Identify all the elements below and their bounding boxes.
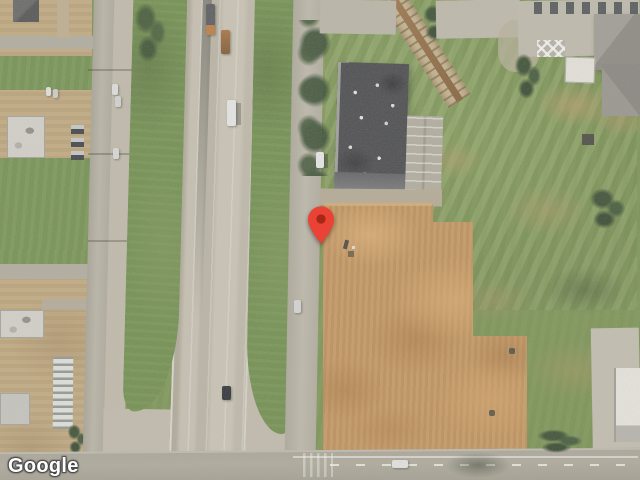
tree-shadow [445,452,511,478]
debris [509,348,515,354]
pole-shadow [88,153,132,155]
map-canvas[interactable]: Google [0,0,640,480]
parked-cars [71,122,84,160]
van [392,460,408,468]
vehicle [113,148,119,159]
vehicle [112,84,118,95]
truck-cab [206,25,215,35]
tree-cluster [128,0,182,74]
car [222,386,231,400]
tree-cluster [583,183,640,237]
parked-cars [534,2,640,14]
truck [227,100,236,126]
tree-cluster [528,426,606,458]
parking-lot [320,0,397,35]
dirt-lot-edge [324,203,432,206]
car [294,300,301,313]
grass-strip [0,56,92,90]
striped-parking-lot [405,115,444,200]
truck [221,30,230,54]
house-roof [594,14,640,70]
truck-shadow [236,103,241,125]
building-roof [614,368,640,442]
construction-equipment [352,246,355,249]
location-pin-icon[interactable] [308,206,334,244]
building-roof [0,310,44,338]
building-roof [7,116,45,158]
pole-shadow [88,69,132,71]
driveway [57,0,69,38]
construction-equipment [348,251,354,257]
building-roof [0,393,30,425]
house-roof [602,64,640,116]
tree-cluster [0,158,92,254]
vehicle [46,87,51,96]
vehicle [115,96,121,107]
warehouse-roof [53,357,74,429]
building-roof [565,56,596,83]
pole-shadow [88,240,132,242]
crosswalk [303,453,333,477]
truck [206,4,215,26]
truck [316,152,324,168]
truck-shadow [324,154,328,168]
debris [489,410,495,416]
tree-row [291,20,339,176]
building-roof [13,0,39,22]
tree-cluster [510,48,554,108]
vehicle [53,89,58,98]
commercial-building-roof [334,62,409,196]
shed-roof [582,134,594,145]
google-logo[interactable]: Google [8,455,79,478]
